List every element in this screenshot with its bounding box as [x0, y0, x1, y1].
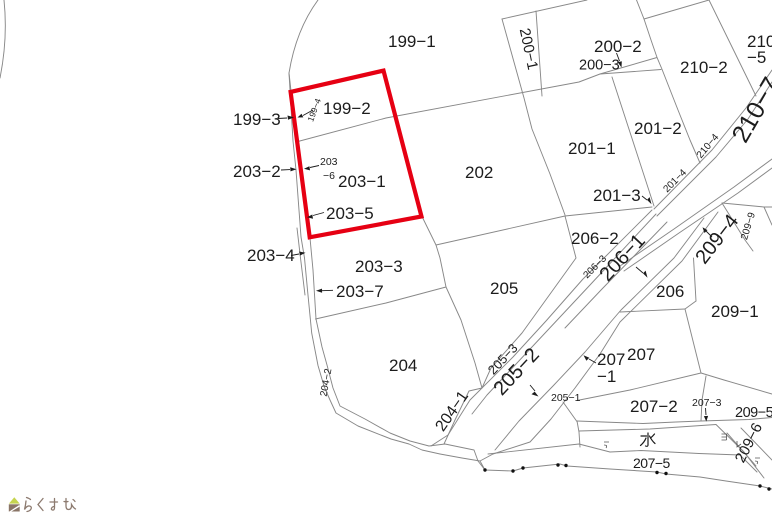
svg-text:201−3: 201−3: [593, 186, 641, 205]
svg-text:201−2: 201−2: [634, 119, 682, 138]
svg-text:199−2: 199−2: [323, 99, 371, 118]
svg-text:206: 206: [656, 282, 684, 301]
svg-text:200−3: 200−3: [579, 58, 620, 74]
svg-text:−1: −1: [597, 367, 616, 386]
svg-text:199−1: 199−1: [388, 32, 436, 51]
svg-text:203−2: 203−2: [233, 162, 281, 181]
svg-text:205−1: 205−1: [551, 392, 581, 404]
svg-text:205: 205: [490, 279, 518, 298]
svg-text:203−3: 203−3: [355, 257, 403, 276]
svg-text:201−1: 201−1: [568, 139, 616, 158]
svg-text:203−1: 203−1: [338, 172, 386, 191]
svg-text:207−5: 207−5: [633, 455, 671, 471]
svg-text:206−2: 206−2: [571, 229, 619, 248]
svg-text:207: 207: [627, 345, 655, 364]
svg-text:204: 204: [389, 356, 417, 375]
svg-text:203−5: 203−5: [326, 204, 374, 223]
svg-text:203−7: 203−7: [336, 282, 384, 301]
svg-text:203−4: 203−4: [247, 246, 295, 265]
svg-text:210−2: 210−2: [680, 58, 728, 77]
svg-text:203: 203: [320, 156, 338, 168]
svg-text:199−3: 199−3: [233, 110, 281, 129]
svg-text:209−1: 209−1: [711, 302, 759, 321]
svg-text:209−5: 209−5: [735, 405, 772, 421]
svg-text:207−3: 207−3: [692, 397, 722, 409]
svg-text:−6: −6: [323, 170, 335, 182]
svg-text:202: 202: [465, 163, 493, 182]
svg-text:207−2: 207−2: [630, 397, 678, 416]
svg-text:−5: −5: [747, 48, 766, 67]
svg-text:200−2: 200−2: [594, 37, 642, 56]
